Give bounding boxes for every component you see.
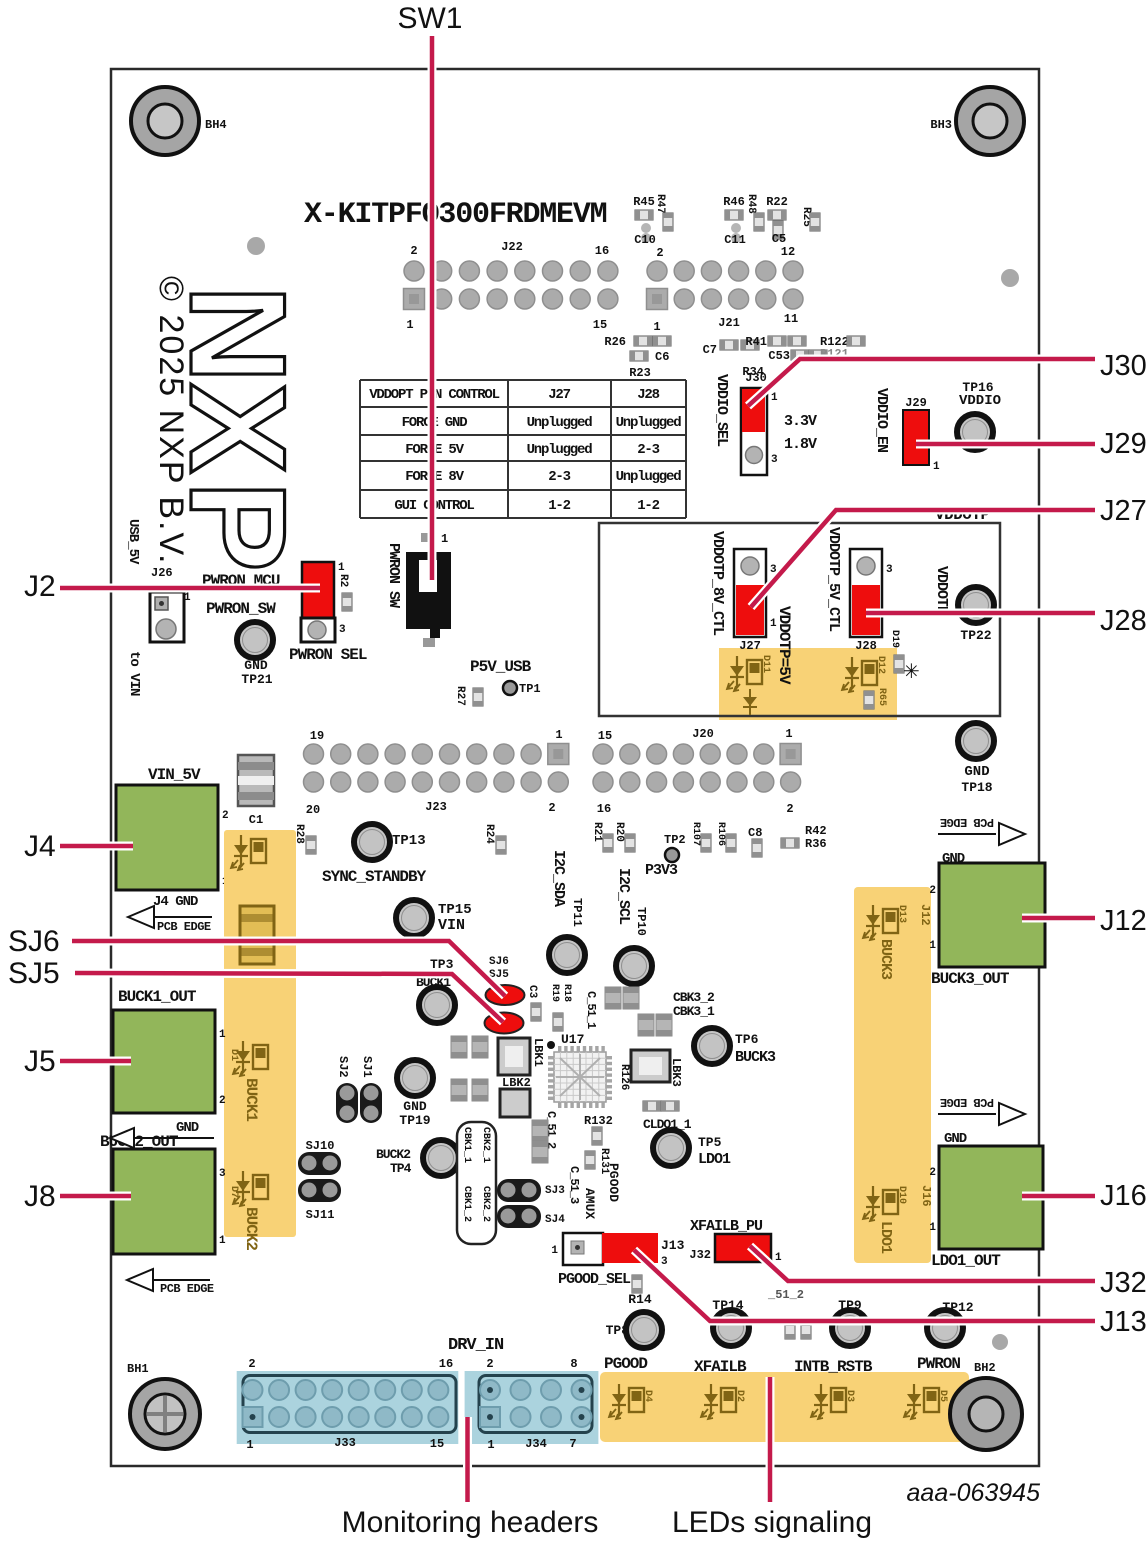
svg-text:J13: J13 — [1100, 1306, 1147, 1338]
svg-text:Monitoring headers: Monitoring headers — [342, 1506, 599, 1539]
svg-text:2: 2 — [929, 1167, 936, 1179]
svg-text:3.3V: 3.3V — [784, 413, 817, 430]
svg-text:J2: J2 — [24, 570, 56, 603]
svg-text:1-2: 1-2 — [548, 498, 570, 514]
svg-text:C11: C11 — [724, 233, 746, 247]
svg-text:TP18: TP18 — [961, 780, 992, 795]
svg-text:J27: J27 — [548, 387, 570, 403]
svg-text:BH1: BH1 — [127, 1362, 149, 1376]
svg-text:Unplugged: Unplugged — [527, 442, 593, 458]
svg-text:C8: C8 — [748, 826, 762, 840]
svg-text:BUCK3: BUCK3 — [877, 939, 894, 980]
svg-text:19: 19 — [310, 729, 324, 743]
svg-text:PGOOD: PGOOD — [606, 1163, 621, 1202]
svg-text:2: 2 — [222, 810, 229, 822]
svg-text:TP1: TP1 — [519, 682, 541, 696]
svg-text:R48: R48 — [745, 194, 757, 214]
svg-text:PWRON: PWRON — [917, 1355, 960, 1373]
svg-text:VDDOTP: VDDOTP — [933, 566, 950, 615]
svg-text:16: 16 — [597, 802, 611, 816]
svg-text:to VIN: to VIN — [126, 651, 142, 696]
svg-text:1: 1 — [219, 1029, 226, 1041]
svg-text:20: 20 — [306, 803, 320, 817]
svg-text:C1: C1 — [249, 813, 263, 827]
svg-text:J32: J32 — [1100, 1267, 1147, 1299]
svg-text:3: 3 — [661, 1256, 668, 1268]
svg-text:R36: R36 — [805, 837, 827, 851]
svg-text:D13: D13 — [896, 905, 907, 923]
svg-text:Unplugged: Unplugged — [616, 415, 682, 431]
svg-text:PCB EDGE: PCB EDGE — [940, 815, 994, 829]
svg-text:C5: C5 — [772, 232, 786, 246]
svg-text:7: 7 — [569, 1437, 576, 1451]
svg-text:1: 1 — [929, 940, 936, 952]
svg-text:© 2025 NXP B.V.: © 2025 NXP B.V. — [152, 276, 190, 565]
svg-text:GND: GND — [176, 1120, 199, 1136]
svg-text:D12: D12 — [875, 656, 886, 674]
svg-text:CBK3_1: CBK3_1 — [673, 1004, 715, 1019]
svg-text:PCB EDGE: PCB EDGE — [940, 1095, 994, 1109]
svg-text:BUCK3_OUT: BUCK3_OUT — [931, 970, 1010, 988]
svg-text:C_51_1: C_51_1 — [584, 991, 598, 1029]
svg-text:VDDOTP_5V_CTL: VDDOTP_5V_CTL — [825, 527, 842, 632]
svg-text:J23: J23 — [425, 800, 447, 814]
svg-text:1.8V: 1.8V — [784, 436, 817, 453]
svg-text:R19: R19 — [549, 984, 560, 1002]
svg-text:1-2: 1-2 — [637, 498, 659, 514]
svg-text:TP6: TP6 — [735, 1032, 759, 1047]
svg-text:VIN_5V: VIN_5V — [148, 766, 201, 784]
svg-text:2: 2 — [486, 1357, 493, 1371]
svg-text:X-KITPFO300FRDMEVM: X-KITPFO300FRDMEVM — [304, 198, 607, 232]
svg-text:15: 15 — [593, 318, 607, 332]
svg-text:TP13: TP13 — [392, 833, 426, 849]
svg-text:TP4: TP4 — [390, 1161, 412, 1176]
svg-text:✳: ✳ — [903, 661, 920, 683]
svg-text:VDDIO: VDDIO — [959, 393, 1001, 409]
svg-text:J5: J5 — [24, 1045, 56, 1078]
svg-text:R45: R45 — [633, 195, 655, 209]
svg-text:J13: J13 — [661, 1238, 685, 1253]
svg-text:2: 2 — [548, 801, 555, 815]
svg-text:SYNC_STANDBY: SYNC_STANDBY — [322, 868, 427, 886]
svg-text:Unplugged: Unplugged — [527, 415, 593, 431]
svg-text:XFAILB_PU: XFAILB_PU — [690, 1218, 763, 1235]
svg-text:J34: J34 — [525, 1437, 547, 1451]
svg-text:PCB EDGE: PCB EDGE — [157, 920, 211, 934]
svg-text:TP11: TP11 — [570, 898, 584, 927]
svg-text:D4: D4 — [642, 1390, 653, 1402]
svg-text:PWRON_SW: PWRON_SW — [206, 600, 276, 618]
svg-text:12: 12 — [781, 245, 795, 259]
svg-text:8: 8 — [570, 1357, 577, 1371]
svg-text:SJ6: SJ6 — [489, 956, 509, 968]
svg-text:2-3: 2-3 — [637, 442, 659, 458]
svg-text:PGOOD: PGOOD — [604, 1355, 647, 1373]
svg-text:J33: J33 — [334, 1436, 356, 1450]
svg-text:3: 3 — [339, 624, 346, 636]
svg-text:J28: J28 — [637, 387, 659, 403]
svg-text:R132: R132 — [584, 1114, 613, 1128]
svg-text:VIN: VIN — [438, 917, 465, 934]
svg-text:PWRON SW: PWRON SW — [385, 543, 402, 608]
svg-text:16: 16 — [439, 1357, 453, 1371]
svg-text:2: 2 — [219, 1095, 226, 1107]
svg-text:CBK3_2: CBK3_2 — [673, 990, 715, 1005]
svg-text:J27: J27 — [739, 639, 761, 653]
svg-text:PCB EDGE: PCB EDGE — [160, 1282, 214, 1296]
svg-text:TP15: TP15 — [438, 902, 472, 918]
svg-text:DRV_IN: DRV_IN — [448, 1336, 504, 1355]
svg-text:BH3: BH3 — [930, 118, 952, 132]
svg-text:1: 1 — [775, 1252, 782, 1264]
svg-text:J27: J27 — [1100, 495, 1147, 527]
svg-text:LDO1: LDO1 — [877, 1221, 894, 1254]
svg-text:I2C_SCL: I2C_SCL — [615, 868, 632, 925]
svg-text:R26: R26 — [604, 335, 626, 349]
svg-text:AMUX: AMUX — [582, 1188, 597, 1219]
svg-text:D7: D7 — [228, 1186, 239, 1198]
svg-text:C53: C53 — [768, 349, 790, 363]
svg-text:R22: R22 — [766, 195, 788, 209]
svg-text:Unplugged: Unplugged — [616, 469, 682, 485]
svg-text:D19: D19 — [889, 630, 900, 648]
svg-text:CBK1_1: CBK1_1 — [461, 1127, 472, 1163]
svg-text:2: 2 — [410, 244, 417, 258]
svg-text:R106: R106 — [715, 822, 726, 846]
svg-text:J12: J12 — [918, 904, 932, 926]
svg-text:LDO1_OUT: LDO1_OUT — [931, 1252, 1001, 1270]
svg-text:TP14: TP14 — [712, 1298, 743, 1313]
svg-text:J4 GND: J4 GND — [153, 894, 198, 910]
svg-text:SJ5: SJ5 — [8, 957, 60, 990]
svg-text:1: 1 — [487, 1438, 494, 1452]
svg-text:BUCK2: BUCK2 — [376, 1147, 411, 1162]
svg-text:D2: D2 — [734, 1390, 745, 1402]
svg-text:TP12: TP12 — [942, 1300, 973, 1315]
svg-text:TP9: TP9 — [838, 1298, 862, 1313]
svg-text:VDDIO_SEL: VDDIO_SEL — [713, 374, 730, 447]
svg-text:R2: R2 — [337, 574, 349, 587]
svg-text:SJ10: SJ10 — [306, 1139, 335, 1153]
svg-text:3: 3 — [219, 1168, 226, 1180]
svg-text:R46: R46 — [723, 195, 745, 209]
svg-text:U17: U17 — [561, 1032, 584, 1047]
svg-text:D1: D1 — [228, 1049, 239, 1061]
svg-text:SJ3: SJ3 — [545, 1185, 565, 1197]
svg-text:TP2: TP2 — [664, 833, 686, 847]
svg-text:USB_5V: USB_5V — [125, 519, 141, 565]
svg-text:2: 2 — [248, 1357, 255, 1371]
svg-text:CBK1_2: CBK1_2 — [461, 1186, 472, 1222]
svg-text:15: 15 — [430, 1437, 444, 1451]
svg-text:R27: R27 — [454, 686, 466, 706]
svg-text:C_51_3: C_51_3 — [567, 1166, 581, 1204]
svg-text:P5V_USB: P5V_USB — [470, 658, 532, 676]
svg-text:C3: C3 — [526, 985, 538, 999]
svg-text:GND: GND — [244, 658, 268, 673]
svg-text:TP19: TP19 — [399, 1113, 430, 1128]
svg-text:VDDOTP_8V_CTL: VDDOTP_8V_CTL — [709, 531, 726, 636]
svg-text:BUCK1_OUT: BUCK1_OUT — [118, 988, 197, 1006]
svg-text:BH4: BH4 — [205, 118, 227, 132]
svg-text:C6: C6 — [655, 350, 669, 364]
svg-text:J26: J26 — [151, 566, 173, 580]
svg-text:1: 1 — [441, 532, 448, 546]
svg-text:1: 1 — [184, 592, 191, 604]
svg-text:R24: R24 — [483, 824, 495, 844]
svg-text:R47: R47 — [654, 194, 666, 214]
svg-text:D5: D5 — [937, 1390, 948, 1402]
svg-text:2: 2 — [656, 246, 663, 260]
svg-text:CBK2_1: CBK2_1 — [480, 1127, 491, 1163]
svg-text:SJ4: SJ4 — [545, 1214, 565, 1226]
svg-text:I2C_SDA: I2C_SDA — [550, 850, 567, 907]
svg-text:1: 1 — [246, 1438, 253, 1452]
svg-text:1: 1 — [933, 461, 940, 473]
svg-text:VDDIO_EN: VDDIO_EN — [873, 388, 890, 453]
svg-text:C10: C10 — [634, 233, 656, 247]
svg-text:PGOOD_SEL: PGOOD_SEL — [558, 1271, 631, 1288]
svg-text:1: 1 — [219, 1235, 226, 1247]
svg-text:LDO1: LDO1 — [698, 1151, 731, 1168]
svg-text:R14: R14 — [628, 1292, 652, 1307]
svg-text:TP22: TP22 — [960, 628, 991, 643]
svg-text:3: 3 — [886, 564, 893, 576]
svg-text:SJ11: SJ11 — [306, 1208, 335, 1222]
svg-text:J30: J30 — [745, 371, 767, 385]
svg-text:TP8: TP8 — [606, 1323, 630, 1338]
svg-text:TP5: TP5 — [698, 1135, 722, 1150]
svg-text:2: 2 — [929, 885, 936, 897]
svg-text:TP21: TP21 — [241, 672, 272, 687]
svg-text:R23: R23 — [629, 366, 651, 380]
svg-text:CBK2_2: CBK2_2 — [480, 1186, 491, 1222]
svg-text:1: 1 — [785, 727, 792, 741]
svg-text:GND: GND — [403, 1099, 427, 1114]
svg-text:LEDs signaling: LEDs signaling — [672, 1506, 872, 1539]
svg-text:LBK1: LBK1 — [531, 1038, 545, 1067]
svg-text:16: 16 — [595, 244, 609, 258]
svg-text:LBK3: LBK3 — [669, 1058, 683, 1087]
svg-text:INTB_RSTB: INTB_RSTB — [794, 1358, 873, 1376]
svg-text:J28: J28 — [1100, 605, 1147, 637]
svg-text:J16: J16 — [919, 1185, 933, 1207]
svg-text:1: 1 — [338, 562, 345, 574]
svg-text:J12: J12 — [1100, 905, 1147, 937]
svg-text:2: 2 — [786, 802, 793, 816]
svg-text:VDDOTP=5V: VDDOTP=5V — [775, 606, 793, 685]
svg-text:aaa-063945: aaa-063945 — [907, 1479, 1041, 1507]
svg-text:1: 1 — [555, 728, 562, 742]
svg-text:P3V3: P3V3 — [645, 862, 678, 879]
svg-text:J29: J29 — [1100, 428, 1147, 460]
svg-text:BUCK3: BUCK3 — [735, 1049, 776, 1066]
svg-text:D10: D10 — [896, 1186, 907, 1204]
svg-text:1: 1 — [406, 318, 413, 332]
svg-text:XFAILB: XFAILB — [694, 1358, 747, 1376]
svg-text:1: 1 — [771, 392, 778, 404]
svg-text:J28: J28 — [855, 639, 877, 653]
svg-text:1: 1 — [929, 1222, 936, 1234]
svg-text:SJ6: SJ6 — [8, 925, 60, 958]
svg-text:D11: D11 — [760, 655, 771, 673]
svg-text:J22: J22 — [501, 240, 523, 254]
svg-text:J30: J30 — [1100, 350, 1147, 382]
svg-text:GND: GND — [964, 764, 989, 780]
svg-text:SJ2: SJ2 — [336, 1056, 350, 1078]
svg-text:1: 1 — [551, 1245, 558, 1257]
svg-text:BH2: BH2 — [974, 1361, 996, 1375]
svg-text:J4: J4 — [24, 830, 56, 863]
svg-text:PWRON SEL: PWRON SEL — [289, 646, 367, 664]
svg-text:TP10: TP10 — [634, 907, 648, 936]
svg-text:C7: C7 — [703, 343, 717, 357]
svg-text:R20: R20 — [613, 822, 625, 842]
svg-text:SJ1: SJ1 — [360, 1056, 374, 1078]
svg-text:J32: J32 — [689, 1248, 711, 1262]
svg-text:J8: J8 — [24, 1180, 56, 1213]
svg-text:15: 15 — [598, 729, 612, 743]
svg-text:R42: R42 — [805, 824, 827, 838]
svg-text:3: 3 — [771, 454, 778, 466]
svg-text:2-3: 2-3 — [548, 469, 570, 485]
svg-text:1: 1 — [653, 320, 660, 334]
svg-text:R107: R107 — [690, 822, 701, 846]
svg-text:D3: D3 — [844, 1390, 855, 1402]
svg-text:R126: R126 — [618, 1064, 630, 1090]
svg-text:BUCK1: BUCK1 — [242, 1078, 260, 1121]
svg-text:J21: J21 — [718, 316, 740, 330]
svg-text:SW1: SW1 — [397, 2, 462, 35]
svg-text:BUCK2: BUCK2 — [242, 1207, 260, 1250]
svg-text:J20: J20 — [692, 727, 714, 741]
svg-text:R65: R65 — [876, 688, 887, 706]
svg-text:R18: R18 — [561, 984, 572, 1002]
svg-text:R41: R41 — [745, 335, 767, 349]
svg-text:_51_2: _51_2 — [767, 1288, 804, 1302]
svg-text:R21: R21 — [591, 822, 603, 842]
svg-text:J29: J29 — [905, 396, 927, 410]
svg-text:J16: J16 — [1100, 1180, 1147, 1212]
svg-text:11: 11 — [784, 312, 798, 326]
